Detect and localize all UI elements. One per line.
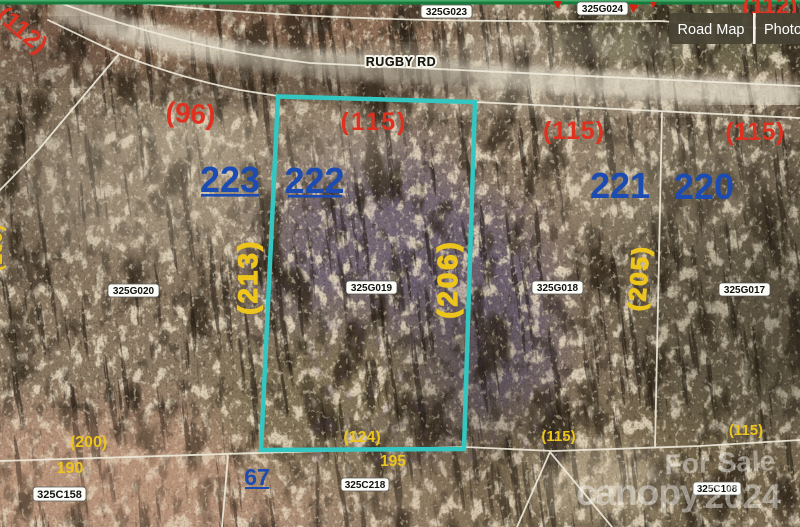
svg-text:(115): (115)	[541, 428, 575, 445]
svg-text:325G019: 325G019	[351, 283, 393, 294]
svg-text:canopy: canopy	[576, 472, 701, 513]
svg-text:325G024: 325G024	[582, 4, 624, 15]
svg-text:325C218: 325C218	[345, 480, 386, 491]
svg-text:325G017: 325G017	[724, 285, 766, 296]
svg-text:(115): (115)	[543, 117, 605, 145]
svg-text:220: 220	[674, 166, 734, 207]
svg-text:325G018: 325G018	[537, 283, 579, 294]
svg-text:221: 221	[590, 165, 650, 206]
svg-text:190: 190	[57, 460, 84, 477]
svg-text:(124): (124)	[343, 429, 380, 446]
svg-text:2024: 2024	[705, 478, 781, 516]
svg-text:222: 222	[284, 160, 344, 201]
svg-text:325G023: 325G023	[426, 7, 468, 18]
svg-text:(206): (206)	[432, 239, 463, 318]
svg-text:(205): (205)	[624, 244, 656, 312]
svg-text:RUGBY RD: RUGBY RD	[366, 55, 436, 69]
svg-text:(115): (115)	[341, 108, 408, 136]
svg-text:(115): (115)	[725, 118, 784, 146]
svg-text:223: 223	[200, 159, 260, 200]
svg-text:(213): (213)	[233, 239, 263, 315]
svg-text:Photo: Photo	[764, 22, 800, 38]
svg-text:67: 67	[244, 464, 270, 490]
svg-text:(200): (200)	[70, 434, 107, 451]
svg-text:(115): (115)	[729, 422, 763, 439]
svg-text:325C158: 325C158	[37, 489, 82, 501]
svg-text:325G020: 325G020	[113, 286, 155, 297]
svg-text:195: 195	[380, 453, 406, 470]
svg-text:(209): (209)	[0, 225, 7, 272]
svg-text:Road Map: Road Map	[678, 22, 745, 38]
svg-text:(96): (96)	[165, 96, 217, 130]
